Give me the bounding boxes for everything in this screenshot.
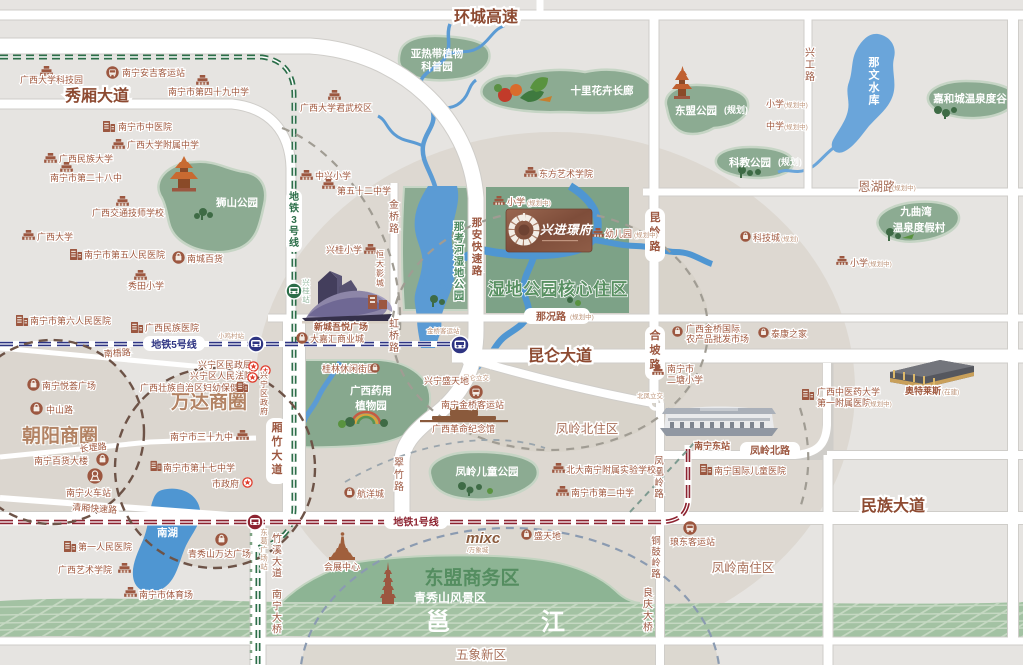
svg-text:第一人民医院: 第一人民医院 <box>78 541 132 552</box>
svg-text:二塘小学: 二塘小学 <box>667 374 703 385</box>
svg-text:第一附属医院: 第一附属医院 <box>817 397 871 408</box>
svg-text:九曲湾: 九曲湾 <box>899 205 932 218</box>
svg-text:广西艺术学院: 广西艺术学院 <box>58 564 112 575</box>
svg-text:凤岭北路: 凤岭北路 <box>750 444 791 457</box>
svg-text:中兴小学: 中兴小学 <box>315 170 351 181</box>
svg-text:东盟公园: 东盟公园 <box>675 104 717 117</box>
svg-text:广西大学君武校区: 广西大学君武校区 <box>300 102 372 113</box>
svg-text:凤岭儿童公园: 凤岭儿童公园 <box>456 465 519 478</box>
svg-text:南宁市第四十九中学: 南宁市第四十九中学 <box>168 86 249 97</box>
svg-text:植物园: 植物园 <box>354 399 387 412</box>
svg-text:会展中心: 会展中心 <box>324 561 360 572</box>
svg-text:泰康之家: 泰康之家 <box>771 328 807 339</box>
svg-text:南宁市: 南宁市 <box>667 363 694 374</box>
svg-text:南宁东站: 南宁东站 <box>694 440 730 451</box>
svg-text:小鸡村站: 小鸡村站 <box>218 331 245 340</box>
svg-text:金桥客运站: 金桥客运站 <box>427 326 460 335</box>
svg-text:恒大影城: 恒大影城 <box>376 249 384 288</box>
svg-text:南宁悦荟广场: 南宁悦荟广场 <box>42 380 96 391</box>
svg-text:嘉和城温泉度谷: 嘉和城温泉度谷 <box>932 92 1007 105</box>
svg-text:小学: 小学 <box>766 98 784 109</box>
svg-text:兴宁盛天地: 兴宁盛天地 <box>424 375 469 386</box>
svg-text:南宁安吉客运站: 南宁安吉客运站 <box>122 67 185 78</box>
svg-text:兴宁区人民法院: 兴宁区人民法院 <box>190 370 253 381</box>
svg-text:邕: 邕 <box>426 609 450 636</box>
svg-text:青秀山风景区: 青秀山风景区 <box>414 590 486 605</box>
svg-text:南宁市第二中学: 南宁市第二中学 <box>571 487 634 498</box>
svg-text:南宁国际儿童医院: 南宁国际儿童医院 <box>714 465 786 476</box>
svg-text:东葛广场站: 东葛广场站 <box>260 527 268 571</box>
svg-text:(规划中): (规划中) <box>868 259 892 268</box>
svg-text:农产品批发市场: 农产品批发市场 <box>686 333 749 344</box>
svg-text:南宁市体育场: 南宁市体育场 <box>139 589 193 600</box>
svg-text:那安快速路: 那安快速路 <box>471 217 483 277</box>
svg-text:万达商圈: 万达商圈 <box>170 390 247 413</box>
svg-text:广西中医药大学: 广西中医药大学 <box>817 386 880 397</box>
svg-text:/万象城: /万象城 <box>467 545 489 554</box>
svg-text:广西壮族自治区妇幼保健院: 广西壮族自治区妇幼保健院 <box>140 382 248 393</box>
svg-text:中学: 中学 <box>766 120 784 131</box>
svg-text:(在建): (在建) <box>942 387 959 396</box>
svg-text:虹桥路: 虹桥路 <box>389 318 399 354</box>
svg-text:地铁1号线: 地铁1号线 <box>393 516 439 529</box>
svg-text:兴宁区政府: 兴宁区政府 <box>260 371 268 416</box>
svg-text:(规划): (规划) <box>778 156 802 167</box>
svg-text:mixc: mixc <box>466 530 501 547</box>
svg-text:南宁金桥客运站: 南宁金桥客运站 <box>441 399 504 410</box>
svg-text:幼儿园: 幼儿园 <box>605 228 632 239</box>
svg-text:凤凰岭路: 凤凰岭路 <box>654 456 664 500</box>
svg-text:铜鼓岭路: 铜鼓岭路 <box>651 535 661 580</box>
svg-text:凤岭北住区: 凤岭北住区 <box>556 422 619 436</box>
svg-text:北大南宁附属实验学校: 北大南宁附属实验学校 <box>566 464 656 475</box>
svg-text:广西大学: 广西大学 <box>37 231 73 242</box>
svg-text:科教公园: 科教公园 <box>729 156 771 169</box>
svg-text:那文水库: 那文水库 <box>869 56 881 107</box>
svg-text:小学: 小学 <box>850 257 868 268</box>
svg-text:(规划中): (规划中) <box>634 230 658 239</box>
svg-text:南宁市三十九中: 南宁市三十九中 <box>170 431 233 442</box>
svg-text:(规划): (规划) <box>781 234 798 243</box>
svg-text:湿地公园核心住区: 湿地公园核心住区 <box>488 279 628 299</box>
svg-text:广西药用: 广西药用 <box>350 384 392 397</box>
svg-text:南城百货: 南城百货 <box>187 253 223 264</box>
svg-text:南宁市第五人民医院: 南宁市第五人民医院 <box>84 249 165 260</box>
svg-text:青秀山万达广场: 青秀山万达广场 <box>188 548 251 559</box>
svg-text:奥特莱斯: 奥特莱斯 <box>904 385 941 396</box>
svg-text:广西金桥国际: 广西金桥国际 <box>686 323 740 334</box>
svg-text:科普园: 科普园 <box>421 60 453 73</box>
svg-text:南宁市第二十八中: 南宁市第二十八中 <box>50 172 122 183</box>
svg-text:第五十二中学: 第五十二中学 <box>337 185 391 196</box>
svg-text:(规划): (规划) <box>724 104 748 115</box>
svg-text:航洋城: 航洋城 <box>357 488 384 499</box>
svg-text:合坡路: 合坡路 <box>650 328 662 371</box>
svg-text:广西大学科技园: 广西大学科技园 <box>20 74 83 85</box>
svg-text:东盟商务区: 东盟商务区 <box>424 566 519 589</box>
svg-text:地铁5号线: 地铁5号线 <box>151 338 197 351</box>
svg-text:科技城: 科技城 <box>753 232 780 243</box>
svg-text:秀厢大道: 秀厢大道 <box>64 86 129 105</box>
svg-text:兴桂站: 兴桂站 <box>302 278 310 304</box>
svg-text:(规划中): (规划中) <box>892 183 916 192</box>
svg-text:(规划中): (规划中) <box>570 312 594 321</box>
svg-text:新城吾悦广场: 新城吾悦广场 <box>314 321 368 332</box>
svg-text:(规划中): (规划中) <box>784 100 808 109</box>
svg-text:广西革命纪念馆: 广西革命纪念馆 <box>432 423 495 434</box>
svg-text:盛天地: 盛天地 <box>534 530 561 541</box>
svg-text:兴宁区民政局: 兴宁区民政局 <box>198 359 252 370</box>
svg-text:兴进璟府: 兴进璟府 <box>540 223 594 237</box>
svg-text:南梧路: 南梧路 <box>103 346 131 359</box>
svg-text:小学: 小学 <box>507 196 525 207</box>
svg-text:南宁火车站: 南宁火车站 <box>66 487 111 498</box>
svg-text:桂林休闲街区: 桂林休闲街区 <box>322 363 376 374</box>
svg-text:五象新区: 五象新区 <box>456 647 506 662</box>
svg-text:市政府: 市政府 <box>212 478 239 489</box>
svg-text:江: 江 <box>541 609 565 636</box>
svg-text:广西民族医院: 广西民族医院 <box>145 322 199 333</box>
svg-text:那考河湿地公园: 那考河湿地公园 <box>454 221 465 302</box>
svg-text:温泉度假村: 温泉度假村 <box>893 221 946 234</box>
svg-text:亚热带植物: 亚热带植物 <box>411 47 464 60</box>
svg-text:(规划中): (规划中) <box>527 198 551 207</box>
svg-text:十里花卉长廊: 十里花卉长廊 <box>571 84 634 97</box>
svg-text:凤岭南住区: 凤岭南住区 <box>712 560 775 575</box>
svg-text:(规划中): (规划中) <box>868 399 892 408</box>
svg-text:广西大学附属中学: 广西大学附属中学 <box>127 139 199 150</box>
svg-text:翠竹路: 翠竹路 <box>394 457 404 493</box>
svg-text:东方艺术学院: 东方艺术学院 <box>539 168 593 179</box>
svg-text:南宁百货大楼: 南宁百货大楼 <box>34 455 88 466</box>
svg-text:民族大道: 民族大道 <box>861 496 925 515</box>
svg-text:南湖: 南湖 <box>157 526 178 539</box>
svg-text:南宁市第六人民医院: 南宁市第六人民医院 <box>30 315 111 326</box>
svg-text:竹溪大道: 竹溪大道 <box>272 532 282 580</box>
svg-text:(规划中): (规划中) <box>784 122 808 131</box>
svg-text:金桥路: 金桥路 <box>389 198 399 235</box>
svg-text:大嘉汇商业城: 大嘉汇商业城 <box>310 333 364 344</box>
svg-text:昆仑大道: 昆仑大道 <box>528 346 592 365</box>
svg-text:南宁市第十七中学: 南宁市第十七中学 <box>163 462 235 473</box>
svg-text:南宁市中医院: 南宁市中医院 <box>118 121 172 132</box>
svg-text:秀田小学: 秀田小学 <box>128 280 164 291</box>
svg-text:恩湖路: 恩湖路 <box>858 179 896 194</box>
svg-text:环城高速: 环城高速 <box>454 7 518 26</box>
svg-text:良庆大桥: 良庆大桥 <box>643 586 653 634</box>
svg-text:那况路: 那况路 <box>536 310 567 323</box>
svg-text:中山路: 中山路 <box>46 404 73 415</box>
svg-text:狮山公园: 狮山公园 <box>215 196 258 209</box>
svg-text:兴工路: 兴工路 <box>805 47 815 83</box>
svg-text:琅东客运站: 琅东客运站 <box>670 536 715 547</box>
svg-text:兴桂小学: 兴桂小学 <box>326 244 362 255</box>
svg-text:南宁大桥: 南宁大桥 <box>272 588 282 636</box>
svg-text:北凤立交: 北凤立交 <box>637 391 664 400</box>
svg-text:广西交通技师学校: 广西交通技师学校 <box>92 207 164 218</box>
